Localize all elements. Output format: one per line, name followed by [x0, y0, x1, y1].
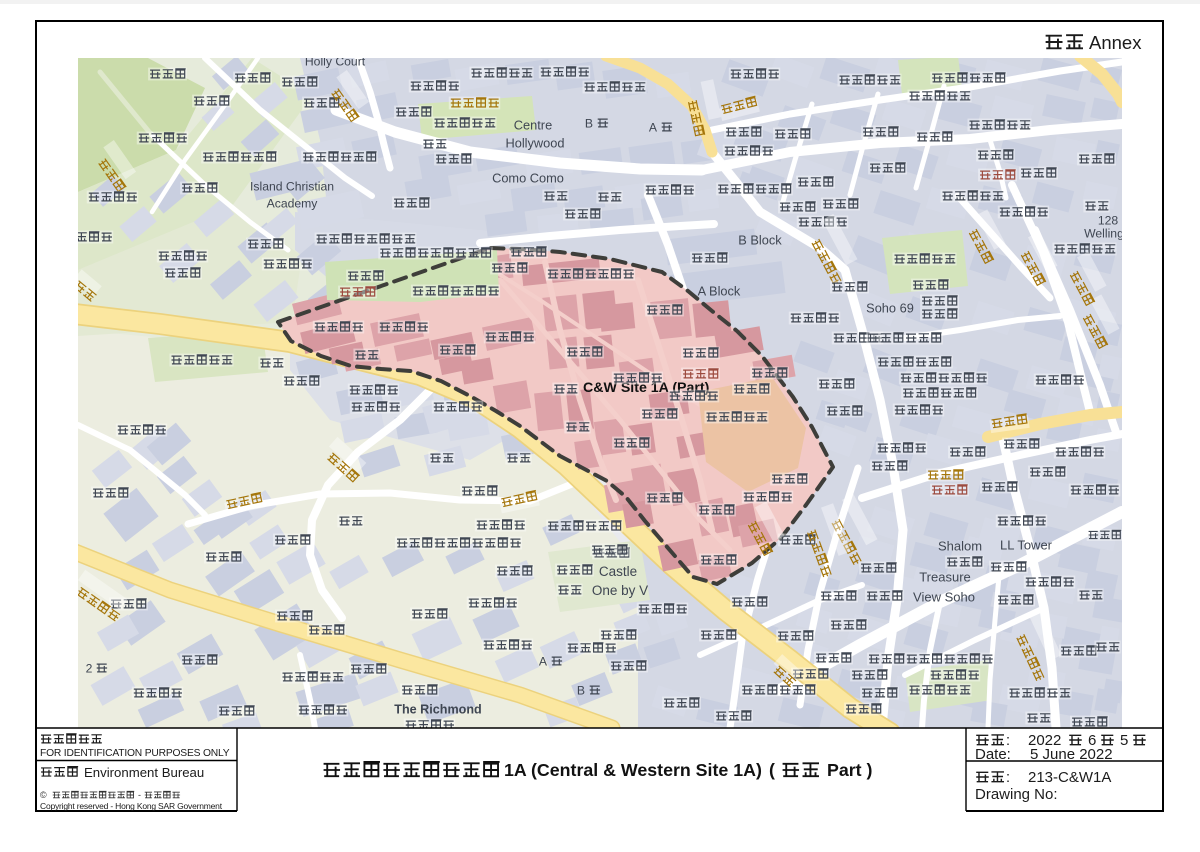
svg-text:1A (Central & Western Site 1A): 1A (Central & Western Site 1A): [504, 760, 762, 780]
svg-text:FOR IDENTIFICATION PURPOSES ON: FOR IDENTIFICATION PURPOSES ONLY: [40, 748, 230, 759]
svg-text:128: 128: [1098, 213, 1119, 227]
svg-text:Copyright reserved - Hong Kong: Copyright reserved - Hong Kong SAR Gover…: [40, 801, 223, 811]
svg-text:B: B: [577, 683, 585, 697]
svg-text:A: A: [539, 654, 548, 668]
svg-text:©: ©: [40, 790, 47, 800]
svg-text:A Block: A Block: [698, 284, 741, 299]
svg-text:Castle: Castle: [599, 564, 637, 579]
svg-text:LL Tower: LL Tower: [1000, 538, 1053, 553]
svg-text:Drawing No:: Drawing No:: [975, 786, 1058, 803]
svg-text:5: 5: [1120, 732, 1128, 749]
svg-text:Hollywood: Hollywood: [505, 136, 564, 151]
svg-text:B Block: B Block: [738, 233, 782, 248]
svg-text:Environment Bureau: Environment Bureau: [84, 765, 204, 780]
svg-text:2: 2: [86, 661, 93, 675]
svg-text:Annex: Annex: [1089, 32, 1142, 53]
svg-text:213-C&W1A: 213-C&W1A: [1028, 769, 1111, 786]
svg-text:Academy: Academy: [267, 196, 319, 210]
svg-text:Island Christian: Island Christian: [250, 179, 334, 193]
svg-text:-: -: [138, 790, 141, 800]
svg-text:View Soho: View Soho: [913, 590, 975, 605]
svg-text:Welling: Welling: [1084, 226, 1124, 240]
svg-text:B: B: [585, 116, 593, 130]
svg-text:Soho 69: Soho 69: [866, 301, 914, 316]
svg-text:Part ): Part ): [827, 760, 873, 780]
svg-text:One by V: One by V: [592, 583, 648, 598]
svg-text:5 June 2022: 5 June 2022: [1030, 746, 1113, 763]
svg-text:Como Como: Como Como: [492, 171, 564, 186]
svg-text:Treasure: Treasure: [919, 570, 971, 585]
svg-text:The Richmond: The Richmond: [394, 703, 481, 717]
svg-text::: :: [1006, 770, 1010, 786]
svg-text:Date:: Date:: [975, 746, 1011, 763]
svg-text:Shalom: Shalom: [938, 539, 982, 554]
svg-text:Centre: Centre: [514, 118, 552, 133]
svg-text:A: A: [649, 120, 658, 134]
svg-text:(: (: [769, 760, 775, 780]
